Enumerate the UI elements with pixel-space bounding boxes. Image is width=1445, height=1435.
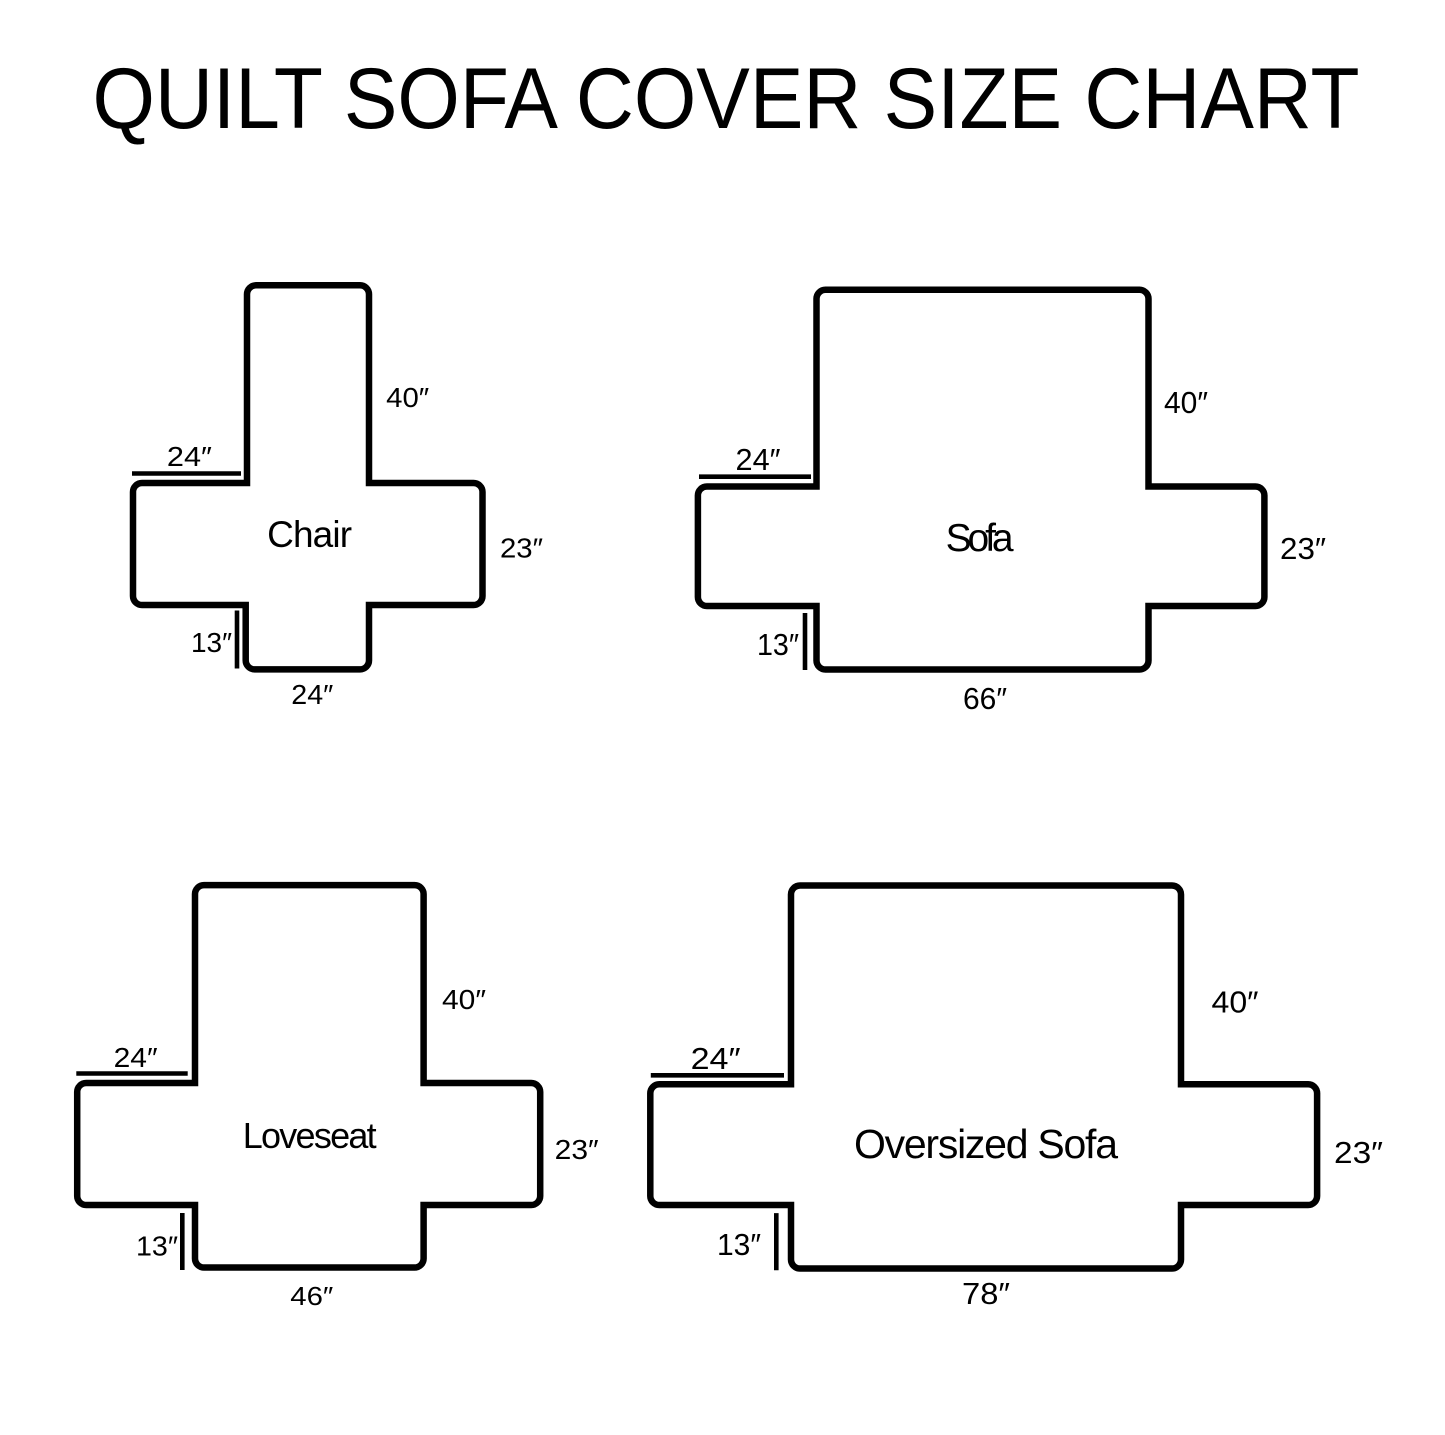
svg-text:13″: 13″	[757, 628, 799, 662]
svg-text:78″: 78″	[962, 1276, 1010, 1311]
svg-text:24″: 24″	[114, 1042, 158, 1073]
svg-text:Chair: Chair	[267, 514, 352, 555]
svg-text:40″: 40″	[1212, 985, 1259, 1020]
svg-text:23″: 23″	[555, 1134, 599, 1165]
svg-text:40″: 40″	[386, 382, 429, 413]
svg-text:24″: 24″	[691, 1041, 741, 1076]
svg-text:13″: 13″	[717, 1227, 761, 1262]
svg-text:13″: 13″	[191, 627, 232, 658]
svg-text:Oversized Sofa: Oversized Sofa	[854, 1121, 1118, 1167]
svg-text:24″: 24″	[736, 443, 781, 477]
svg-text:24″: 24″	[291, 679, 333, 710]
svg-text:24″: 24″	[167, 441, 212, 472]
svg-text:40″: 40″	[1164, 386, 1208, 420]
svg-text:46″: 46″	[290, 1283, 333, 1311]
svg-text:66″: 66″	[963, 682, 1007, 716]
svg-text:23″: 23″	[500, 533, 543, 564]
svg-text:40″: 40″	[442, 984, 486, 1015]
svg-text:23″: 23″	[1334, 1135, 1383, 1170]
svg-text:Loveseat: Loveseat	[243, 1115, 377, 1156]
svg-text:13″: 13″	[136, 1231, 178, 1262]
svg-text:Sofa: Sofa	[946, 517, 1014, 560]
svg-text:QUILT SOFA COVER SIZE CHART: QUILT SOFA COVER SIZE CHART	[93, 51, 1360, 147]
svg-text:23″: 23″	[1280, 532, 1326, 566]
